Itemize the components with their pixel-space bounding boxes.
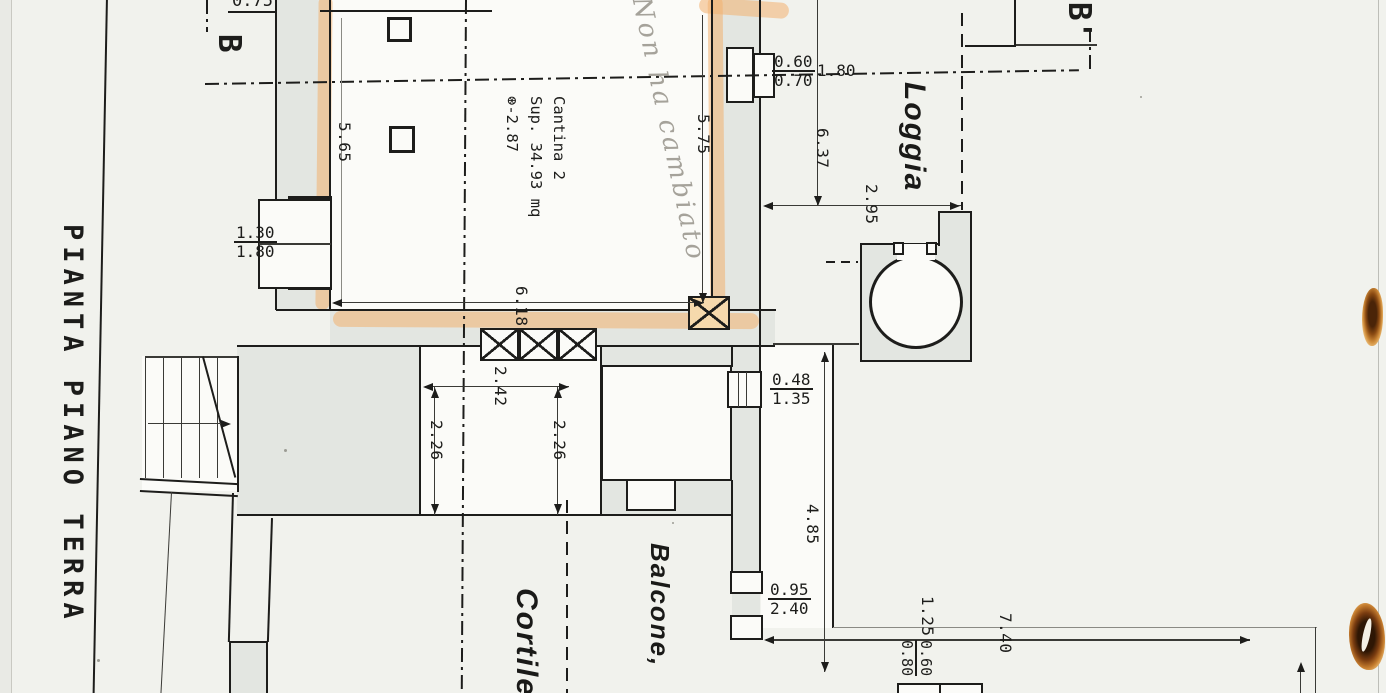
cantina-elevation: ⊛-2.87	[500, 96, 523, 217]
cortile-label: Cortile	[509, 588, 543, 693]
hatch-cell	[480, 328, 519, 361]
dim-arrow	[764, 636, 774, 644]
dim-125-label: 1.25	[918, 596, 937, 637]
dim-226-right-label: 2.26	[550, 420, 569, 461]
dim-den: 1.80	[234, 243, 277, 260]
hatch-strip	[480, 328, 597, 361]
dim-arrow	[821, 352, 829, 362]
narrow-wall-line	[228, 493, 234, 642]
mid-room	[601, 365, 732, 481]
wall-line	[711, 0, 713, 310]
section-marker-b: B	[211, 34, 247, 53]
page-title: PIANTA PIANO TERRA	[57, 224, 88, 625]
dim-637-label: 6.37	[813, 128, 832, 169]
scan-edge-left	[0, 0, 12, 693]
dim-arrow	[431, 388, 439, 398]
dim-num: 1.30	[234, 224, 277, 243]
paper-fold-line	[1378, 0, 1379, 693]
stairs-top-line	[146, 356, 239, 358]
dim-den: 2.40	[768, 600, 811, 617]
wall-line	[731, 347, 733, 367]
wall-room-top	[601, 346, 732, 366]
dim-arrow	[1297, 662, 1305, 672]
dim-740-label: 7.40	[996, 613, 1015, 654]
courtyard-left-line	[160, 492, 172, 693]
burn-stain-small	[1362, 288, 1383, 346]
wall-block-center	[237, 345, 420, 516]
dim-arrow	[332, 299, 342, 307]
dim-arrow	[1240, 636, 1250, 644]
dim-left-window-label: 1.30 1.80	[234, 224, 277, 261]
wall-line	[419, 347, 421, 516]
dim-arrow	[554, 388, 562, 398]
dim-top-door-label: 0.60 0.70	[772, 53, 815, 90]
dim-den: 1.35	[770, 390, 813, 407]
dim-565-label: 5.65	[335, 122, 354, 163]
section-marker-b-prime: B'	[1061, 2, 1097, 39]
dim-485-label: 4.85	[803, 504, 822, 545]
corridor-right-wall-line	[832, 344, 834, 628]
boundary-line	[1315, 627, 1316, 693]
terrace-interior	[421, 347, 601, 515]
well-neck-jamb	[926, 242, 937, 255]
dashed-segment	[826, 261, 858, 263]
stairs-direction-arrow	[221, 420, 231, 428]
mid-room-notch	[626, 481, 676, 511]
courtyard-top-line	[773, 343, 859, 345]
loggia-label: Loggia	[897, 82, 931, 192]
speckle	[672, 522, 674, 524]
well-circle	[869, 255, 963, 349]
stairs-right-line	[237, 356, 239, 492]
mid-window-line	[746, 372, 747, 407]
well-block-step	[938, 211, 972, 246]
loggia-dashed-line	[961, 13, 963, 210]
window-jamb	[288, 287, 332, 290]
mid-window	[727, 371, 762, 408]
dim-242-label: 2.42	[491, 366, 510, 407]
speckle	[284, 449, 287, 452]
dim-575-label: 5.75	[694, 114, 713, 155]
dim-mid-window-label: 0.48 1.35	[770, 371, 813, 408]
dim-618-label: 6.18	[512, 286, 531, 327]
dim-den: 0.70	[772, 72, 815, 89]
wall-line	[237, 514, 733, 516]
wall-line	[731, 480, 733, 572]
bottom-edge-wall	[939, 683, 983, 693]
well-neck-jamb	[893, 242, 904, 255]
dim-arrow	[763, 202, 773, 210]
stairs-direction-line	[148, 423, 222, 424]
dim-arrow	[821, 662, 829, 672]
floor-plan-sheet: PIANTA PIANO TERRA B B' Cantina 2 Sup. 3…	[0, 0, 1386, 693]
hatch-cell	[558, 328, 597, 361]
speckle	[1140, 96, 1142, 98]
wall-stub-bottom	[229, 641, 268, 693]
dim-arrow	[950, 202, 960, 210]
dim-line	[817, 0, 818, 206]
wall-line	[759, 312, 761, 572]
balcone-dashed-line	[566, 500, 568, 693]
balcony-door-jamb	[730, 615, 763, 640]
cantina-name: Cantina 2	[547, 96, 570, 217]
dim-den: 0.80	[898, 640, 915, 676]
sheet-border-line	[93, 0, 108, 693]
dim-num: 0.48	[770, 371, 813, 390]
dim-arrow	[431, 504, 439, 514]
dim-line	[824, 352, 825, 672]
narrow-wall-line	[267, 518, 273, 642]
stairs-left-line	[145, 356, 146, 478]
cantina-label: Cantina 2 Sup. 34.93 mq ⊛-2.87	[500, 96, 570, 217]
mid-window-line	[738, 372, 739, 407]
stair-tread	[181, 357, 182, 478]
dim-num: 0.60	[772, 53, 815, 72]
dim-balcony-door-label: 0.95 2.40	[768, 581, 811, 618]
dim-arrow	[694, 299, 704, 307]
stair-tread	[199, 357, 200, 478]
stairs-lip-line	[140, 490, 238, 497]
dim-075-label: 0.75	[228, 0, 277, 13]
pillar	[389, 126, 415, 153]
speckle	[97, 659, 100, 662]
dim-arrow	[554, 504, 562, 514]
hatch-cell	[519, 328, 558, 361]
loggia-corner-line	[965, 45, 1016, 47]
stair-tread	[163, 357, 164, 478]
wall-line	[759, 0, 761, 312]
loggia-corner-line	[1014, 0, 1016, 47]
dim-num: 0.60	[915, 640, 934, 676]
dim-line	[833, 627, 1317, 628]
bottom-edge-wall	[897, 683, 941, 693]
window-jamb	[288, 196, 332, 199]
balcone-label: Balcone,	[644, 543, 675, 667]
dim-num: 0.95	[768, 581, 811, 600]
dim-226-left-label: 2.26	[427, 420, 446, 461]
dim-295-label: 2.95	[862, 184, 881, 225]
loggia-corner-line	[1016, 44, 1097, 46]
dim-180-label: 1.80	[817, 61, 856, 80]
pillar	[387, 17, 412, 42]
cantina-area: Sup. 34.93 mq	[524, 96, 547, 217]
balcony-door-jamb	[730, 571, 763, 594]
section-tick	[206, 0, 208, 32]
dim-bottom-right-frac: 0.60 0.80	[898, 640, 935, 676]
